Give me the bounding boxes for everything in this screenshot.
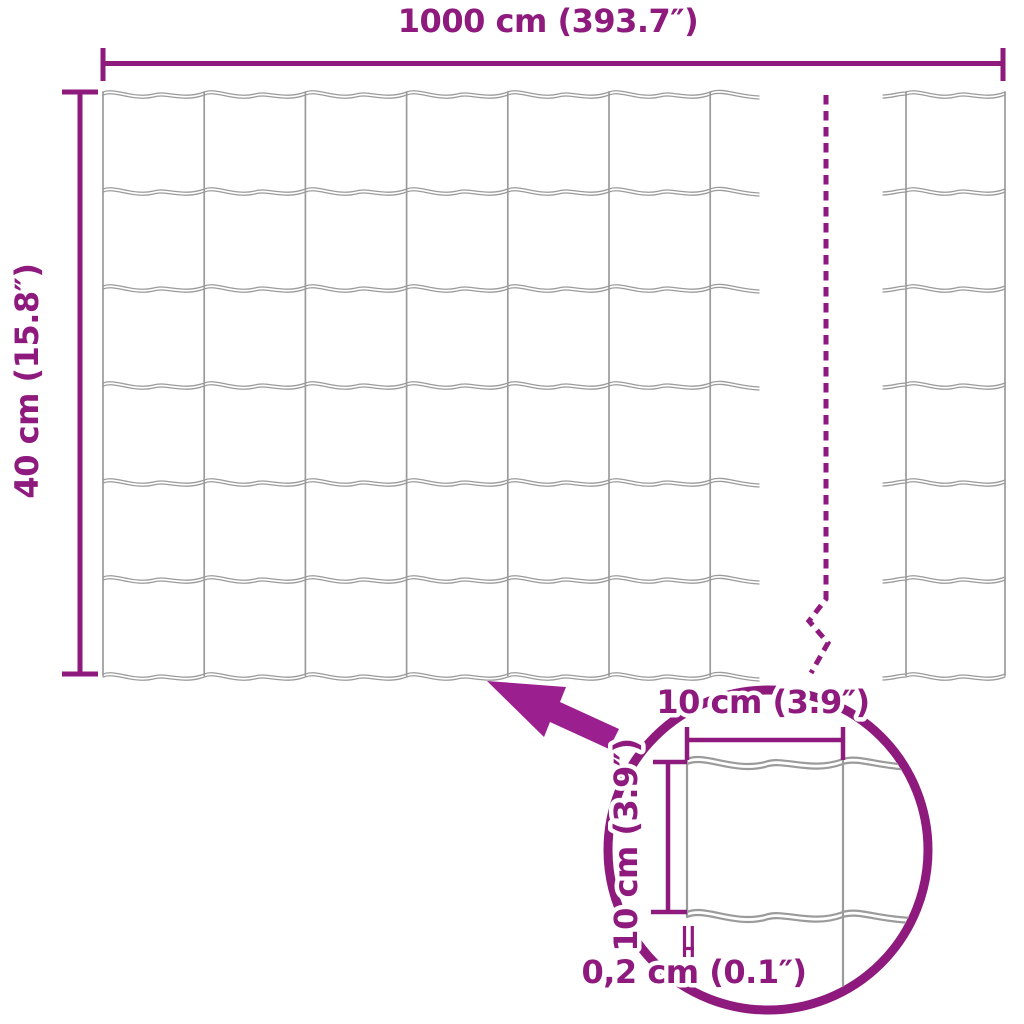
mesh-horizontal-wires <box>103 90 759 681</box>
width-dimension-line <box>103 48 1003 81</box>
mesh-horizontal-wires-right-piece <box>883 91 1005 680</box>
diagram-svg: 1000 cm (393.7″) 40 cm (15.8″) 10 cm (3.… <box>0 0 1024 1024</box>
mesh-vertical-wires <box>103 92 1005 676</box>
height-dimension-line <box>62 92 98 674</box>
overall-height-label: 40 cm (15.8″) <box>8 263 46 498</box>
cell-width-label: 10 cm (3.9″) <box>656 683 869 721</box>
dimension-diagram: 1000 cm (393.7″) 40 cm (15.8″) 10 cm (3.… <box>0 0 1024 1024</box>
overall-width-label: 1000 cm (393.7″) <box>398 2 698 40</box>
mesh-grid <box>103 90 1005 681</box>
wire-thickness-label: 0,2 cm (0.1″) <box>581 953 806 991</box>
zoom-arrow-icon <box>487 681 619 749</box>
cell-height-label: 10 cm (3.9″) <box>607 738 645 951</box>
break-dashed-line <box>809 95 828 673</box>
